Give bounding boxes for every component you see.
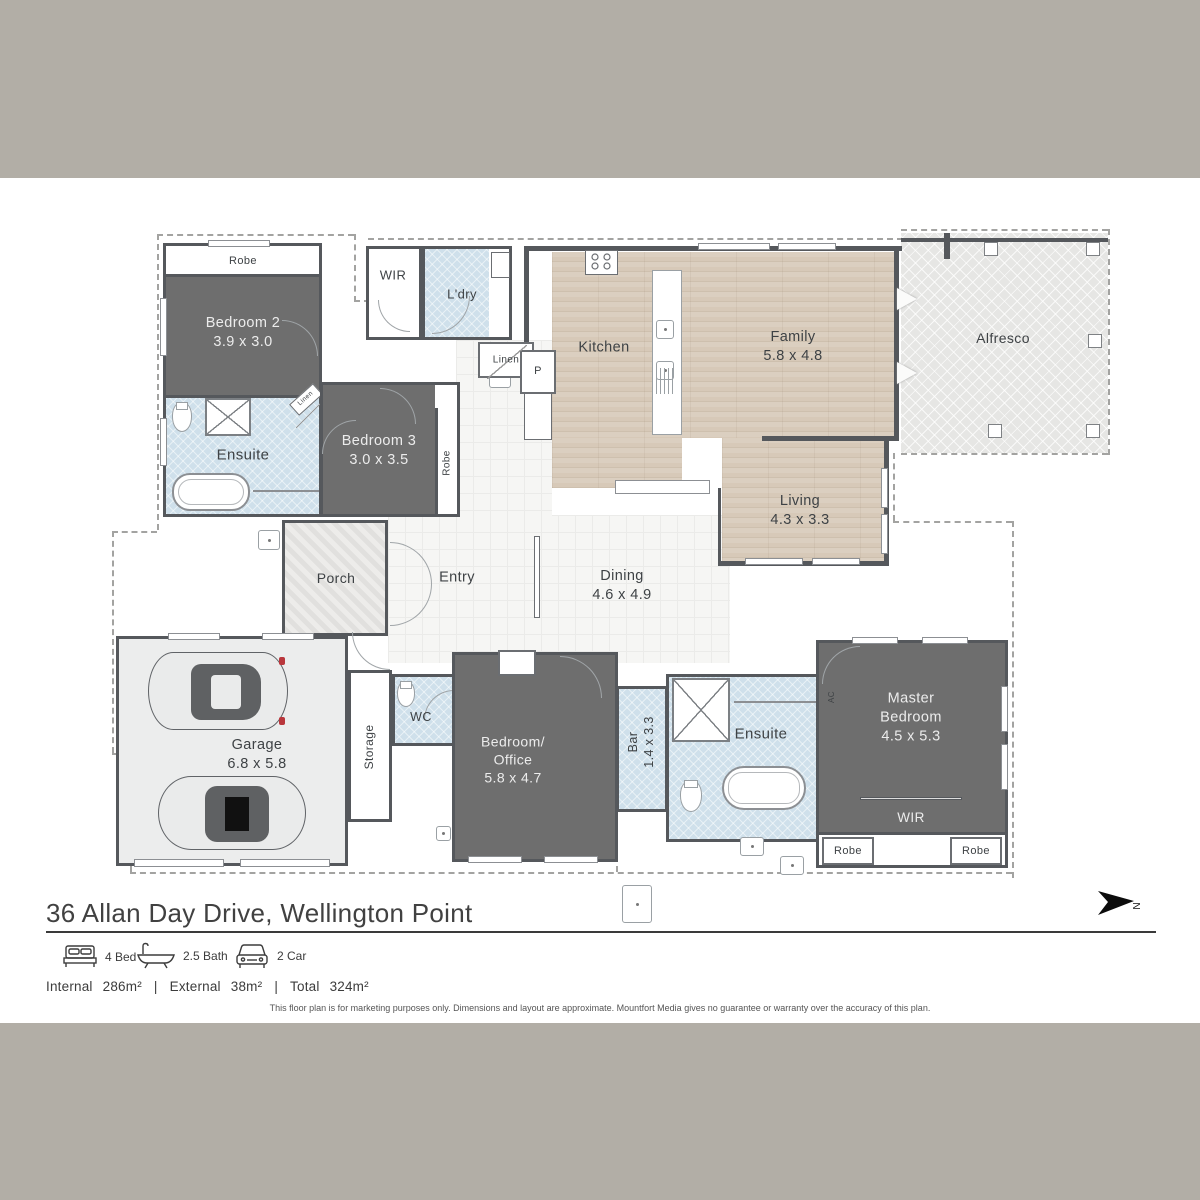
- robe-label: Robe: [229, 254, 257, 268]
- boundary-dash: [157, 234, 159, 530]
- alfresco-post: [1086, 242, 1100, 256]
- toilet: [172, 402, 192, 432]
- window: [852, 637, 898, 644]
- garage-label: Garage 6.8 x 5.8: [227, 736, 286, 774]
- window: [160, 418, 167, 466]
- vanity-counter: [253, 490, 319, 492]
- shower: [205, 398, 251, 436]
- laundry-cabinet: [491, 252, 510, 278]
- window: [1001, 686, 1008, 732]
- corner-basin: [436, 826, 451, 841]
- window: [812, 558, 860, 565]
- boundary-dash: [112, 531, 157, 533]
- ensuite1-label: Ensuite: [217, 445, 270, 465]
- dining-name: Dining: [592, 567, 651, 586]
- ac-label: AC: [827, 691, 837, 703]
- alfresco-post: [1088, 334, 1102, 348]
- window: [922, 637, 968, 644]
- alfresco-door-marker: [897, 362, 917, 384]
- entry-label: Entry: [439, 569, 475, 588]
- car-sunroof: [225, 797, 249, 831]
- boundary-dash: [893, 521, 1012, 523]
- alfresco-post: [988, 424, 1002, 438]
- master-line1: Master: [880, 690, 942, 709]
- basin: [740, 837, 764, 856]
- separator: |: [274, 979, 278, 994]
- boundary-dash: [354, 234, 356, 302]
- bedroom3-dims: 3.0 x 3.5: [342, 451, 417, 470]
- drainer: [656, 368, 676, 394]
- bedroom-office-label: Bedroom/ Office 5.8 x 4.7: [481, 733, 545, 788]
- alfresco-label: Alfresco: [976, 329, 1030, 347]
- wir-top-label: WIR: [380, 268, 406, 285]
- window: [698, 243, 770, 250]
- porch-label: Porch: [317, 569, 356, 587]
- island-bench: [652, 270, 682, 435]
- feature-baths-label: 2.5 Bath: [183, 949, 228, 963]
- feature-beds: 4 Bed: [62, 944, 136, 970]
- bathtub: [722, 766, 806, 810]
- family-dims: 5.8 x 4.8: [763, 347, 822, 366]
- window: [208, 240, 270, 247]
- bar-fridge: [622, 885, 652, 923]
- window: [881, 514, 888, 554]
- bed-icon: [62, 944, 98, 970]
- bar-label: Bar 1.4 x 3.3: [625, 716, 658, 768]
- garage-door: [134, 859, 224, 867]
- boundary-dash: [1108, 229, 1110, 455]
- robe-m2-label: Robe: [962, 844, 990, 858]
- boundary-dash: [901, 229, 1108, 231]
- linen2-label: Linen: [493, 354, 519, 367]
- alfresco-post: [1086, 424, 1100, 438]
- boundary-dash: [130, 872, 1012, 874]
- toilet: [680, 780, 702, 812]
- kitchen-sink: [656, 320, 674, 339]
- garage-entry-door-arc: [352, 632, 390, 670]
- bath-icon: [136, 942, 176, 970]
- master-dims: 4.5 x 5.3: [880, 727, 942, 746]
- north-arrow-icon: N: [1094, 886, 1146, 922]
- car-taillight: [279, 657, 285, 665]
- window: [1001, 744, 1008, 790]
- page-title: 36 Allan Day Drive, Wellington Point: [46, 898, 473, 929]
- entry-divider-wall: [534, 536, 540, 618]
- disclaimer-text: This floor plan is for marketing purpose…: [40, 1003, 1160, 1013]
- internal-value: 286m²: [103, 979, 142, 994]
- storage-label: Storage: [362, 725, 378, 770]
- feature-cars-label: 2 Car: [277, 949, 306, 963]
- window: [745, 558, 803, 565]
- area-totals: Internal286m²|External38m²|Total324m²: [46, 979, 369, 994]
- boundary-dash: [112, 531, 114, 753]
- pantry-label: P: [534, 364, 542, 378]
- title-rule: [46, 931, 1156, 933]
- internal-label: Internal: [46, 979, 93, 994]
- boundary-dash: [157, 234, 354, 236]
- floor-plan: Robe Bedroom 2 3.9 x 3.0 Ensuite Linen B…: [0, 0, 1200, 1023]
- bedroom2-name: Bedroom 2: [206, 314, 281, 333]
- master-line2: Bedroom: [880, 709, 942, 728]
- wall-family-south: [762, 436, 899, 441]
- living-dims: 4.3 x 3.3: [770, 511, 829, 530]
- bedroom2-dims: 3.9 x 3.0: [206, 333, 281, 352]
- wall-living-west: [718, 488, 721, 566]
- garage-name: Garage: [227, 736, 286, 755]
- robe3-label: Robe: [441, 450, 454, 476]
- bedroom3-name: Bedroom 3: [342, 432, 417, 451]
- bedroom-office-line1: Bedroom/: [481, 733, 545, 751]
- ensuite2-label: Ensuite: [735, 724, 788, 744]
- basin: [258, 530, 280, 550]
- boundary-dash: [1012, 521, 1014, 878]
- robe-m1-label: Robe: [834, 844, 862, 858]
- office-nook: [498, 650, 536, 676]
- window: [881, 468, 888, 508]
- wir-rail: [860, 797, 962, 800]
- boundary-dash: [893, 453, 895, 521]
- toilet: [397, 681, 415, 707]
- feature-beds-label: 4 Bed: [105, 950, 136, 964]
- bottom-band: [0, 1023, 1200, 1200]
- shower: [672, 678, 730, 742]
- kitchen-label: Kitchen: [578, 339, 629, 358]
- window: [778, 243, 836, 250]
- car-icon: [234, 942, 270, 970]
- floorplan-page: Robe Bedroom 2 3.9 x 3.0 Ensuite Linen B…: [0, 0, 1200, 1200]
- external-label: External: [170, 979, 221, 994]
- car-top-view: [158, 776, 306, 850]
- alfresco-post: [984, 242, 998, 256]
- bench-low-wall: [615, 480, 710, 494]
- feature-cars: 2 Car: [234, 942, 306, 970]
- bedroom-office-dims: 5.8 x 4.7: [481, 769, 545, 787]
- bathtub: [172, 473, 250, 511]
- alfresco-wall-stub: [944, 233, 950, 259]
- feature-baths: 2.5 Bath: [136, 942, 228, 970]
- living-name: Living: [770, 492, 829, 511]
- bar-name: Bar: [625, 716, 641, 768]
- family-label: Family 5.8 x 4.8: [763, 328, 822, 366]
- robe3-wall: [435, 408, 438, 514]
- dining-dims: 4.6 x 4.9: [592, 586, 651, 605]
- total-value: 324m²: [330, 979, 369, 994]
- north-arrow: N: [1094, 886, 1146, 922]
- bedroom-office-line2: Office: [481, 751, 545, 769]
- boundary-dash: [901, 453, 1108, 455]
- car-roof: [211, 675, 241, 709]
- cooktop: [585, 250, 618, 275]
- alfresco-door-marker: [897, 288, 917, 310]
- wir-master-label: WIR: [897, 809, 924, 827]
- garage-door: [240, 859, 330, 867]
- window: [544, 856, 598, 863]
- cooktop-burners: [586, 251, 616, 271]
- separator: |: [154, 979, 158, 994]
- basin: [780, 856, 804, 875]
- dining-label: Dining 4.6 x 4.9: [592, 567, 651, 605]
- vanity-counter: [734, 701, 818, 703]
- master-label: Master Bedroom 4.5 x 5.3: [880, 690, 942, 747]
- window: [160, 298, 167, 356]
- external-value: 38m²: [231, 979, 263, 994]
- window: [168, 633, 220, 640]
- north-letter: N: [1132, 902, 1143, 909]
- living-label: Living 4.3 x 3.3: [770, 492, 829, 530]
- garage-dims: 6.8 x 5.8: [227, 755, 286, 774]
- bedroom2-label: Bedroom 2 3.9 x 3.0: [206, 314, 281, 352]
- entry-dining-floor: [388, 515, 730, 663]
- total-label: Total: [290, 979, 320, 994]
- bedroom3-label: Bedroom 3 3.0 x 3.5: [342, 432, 417, 470]
- wall-living-south: [718, 561, 889, 566]
- alfresco-beam: [901, 238, 1108, 242]
- laundry-label: L'dry: [447, 287, 477, 304]
- window: [468, 856, 522, 863]
- wall-family-east: [894, 246, 899, 441]
- car-taillight: [279, 717, 285, 725]
- window: [262, 633, 314, 640]
- wc-label: WC: [410, 709, 432, 725]
- boundary-dash: [368, 238, 903, 240]
- family-name: Family: [763, 328, 822, 347]
- car-top-view: [148, 652, 288, 730]
- bar-dims: 1.4 x 3.3: [641, 716, 657, 768]
- wall-kitchen-west: [524, 246, 529, 346]
